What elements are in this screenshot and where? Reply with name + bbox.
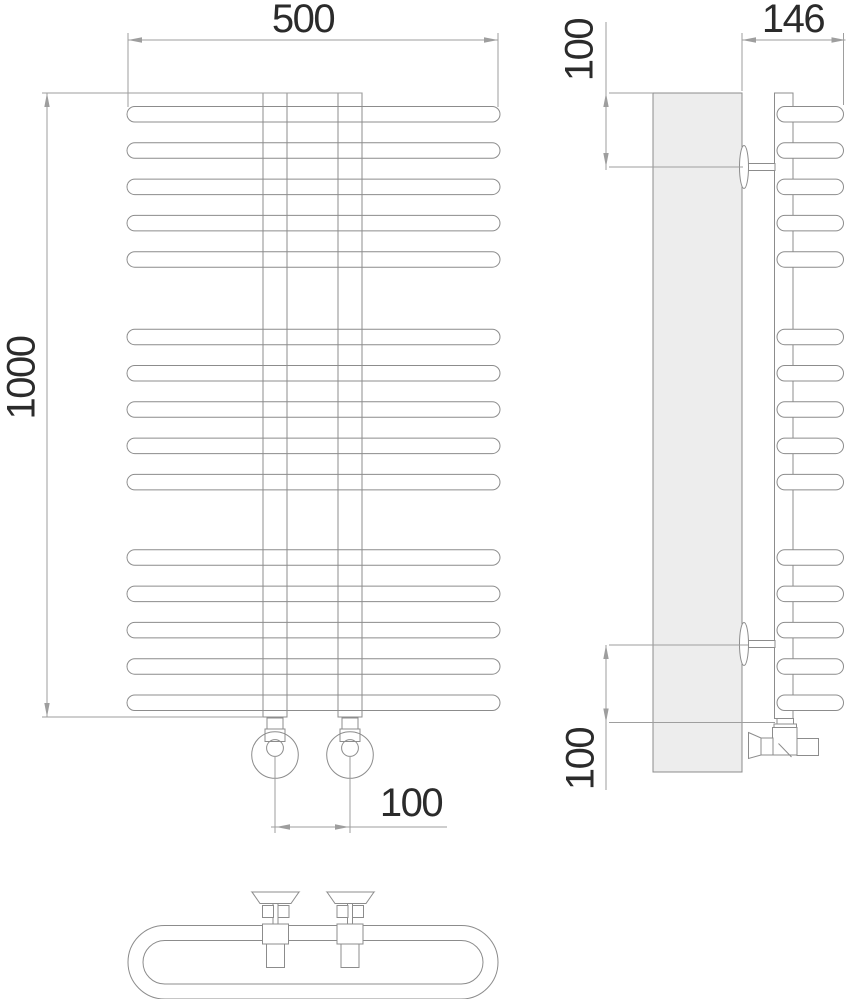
valve-body	[263, 924, 289, 944]
arrowhead	[742, 37, 756, 42]
dim-label-146: 146	[762, 0, 824, 41]
plan-valve-left	[252, 892, 299, 968]
valve-flange	[777, 719, 794, 725]
valve-side-nut	[353, 906, 364, 918]
valve-side-nut	[263, 906, 274, 918]
dim-label-100-bottom: 100	[559, 728, 603, 790]
side-bar	[777, 474, 844, 490]
side-bar	[777, 215, 844, 231]
side-bar	[777, 107, 844, 123]
radiator-bar	[127, 107, 500, 123]
valve-body	[337, 924, 363, 944]
arrowhead	[276, 824, 290, 829]
radiator-bar	[127, 366, 500, 382]
side-bar	[777, 402, 844, 418]
front-bars	[127, 107, 500, 711]
dim-front-height: 1000	[0, 93, 362, 717]
side-bar	[777, 659, 844, 675]
bottom-view	[128, 892, 498, 999]
side-view	[653, 93, 844, 772]
valve-tail	[267, 944, 285, 968]
arrowhead	[603, 645, 608, 659]
side-bar	[777, 179, 844, 195]
radiator-bar	[127, 586, 500, 602]
radiator-bar	[127, 402, 500, 418]
radiator-bar	[127, 143, 500, 159]
side-bar	[777, 438, 844, 454]
dim-side-depth: 146	[742, 0, 846, 105]
radiator-bar	[127, 550, 500, 566]
wall-bracket-top	[740, 146, 776, 189]
valve-side-nut	[278, 906, 289, 918]
arrowhead	[44, 93, 49, 107]
bracket-arm	[748, 641, 775, 648]
drawing-canvas: 500 1000 100 146	[0, 0, 847, 999]
bracket-plate	[740, 623, 749, 666]
front-view	[127, 93, 500, 778]
side-valve	[749, 719, 819, 759]
valve-knob-inner	[267, 740, 284, 757]
radiator-bar	[127, 329, 500, 345]
bracket-arm	[748, 164, 775, 171]
radiator-bar	[127, 179, 500, 195]
dim-label-500: 500	[272, 0, 334, 41]
arrowhead	[484, 37, 498, 42]
radiator-bar	[127, 438, 500, 454]
valve-pipe	[797, 739, 819, 756]
valve-neck	[267, 718, 283, 729]
valve-lip	[774, 724, 797, 728]
front-riser-left	[263, 93, 287, 717]
plan-valve-right	[327, 892, 374, 968]
arrowhead	[44, 703, 49, 717]
side-bar	[777, 586, 844, 602]
valve-handle	[252, 892, 299, 904]
dim-tap-spacing: 100	[271, 757, 447, 833]
radiator-bar	[127, 474, 500, 490]
side-bar	[777, 252, 844, 268]
arrowhead	[603, 153, 608, 167]
valve-side-nut	[337, 906, 348, 918]
radiator-bar	[127, 622, 500, 638]
side-bar	[777, 329, 844, 345]
front-riser-right	[338, 93, 362, 717]
radiator-bar	[127, 252, 500, 268]
valve-neck	[342, 718, 358, 729]
valve-handle	[327, 892, 374, 904]
dim-label-100-taps: 100	[380, 781, 442, 825]
dim-front-width: 500	[128, 0, 498, 107]
side-bar	[777, 622, 844, 638]
arrowhead	[603, 709, 608, 723]
side-bar	[777, 143, 844, 159]
arrowhead	[603, 93, 608, 107]
arrowhead	[335, 824, 349, 829]
bar-top-outline-inner	[143, 941, 483, 985]
side-bar	[777, 550, 844, 566]
dim-label-1000: 1000	[0, 336, 44, 419]
side-bar	[777, 695, 844, 711]
technical-drawing-towel-radiator: 500 1000 100 146	[0, 0, 847, 999]
radiator-bar	[127, 659, 500, 675]
side-bar	[777, 366, 844, 382]
radiator-bar	[127, 215, 500, 231]
valve-knob-inner	[342, 740, 359, 757]
dim-label-100-top: 100	[558, 19, 602, 81]
arrowhead	[128, 37, 142, 42]
wall-section	[653, 93, 742, 772]
valve-tail	[341, 944, 359, 968]
valve-body	[773, 728, 798, 756]
bar-top-outline-outer	[128, 926, 498, 999]
wall-bracket-bottom	[740, 623, 776, 666]
radiator-bar	[127, 695, 500, 711]
